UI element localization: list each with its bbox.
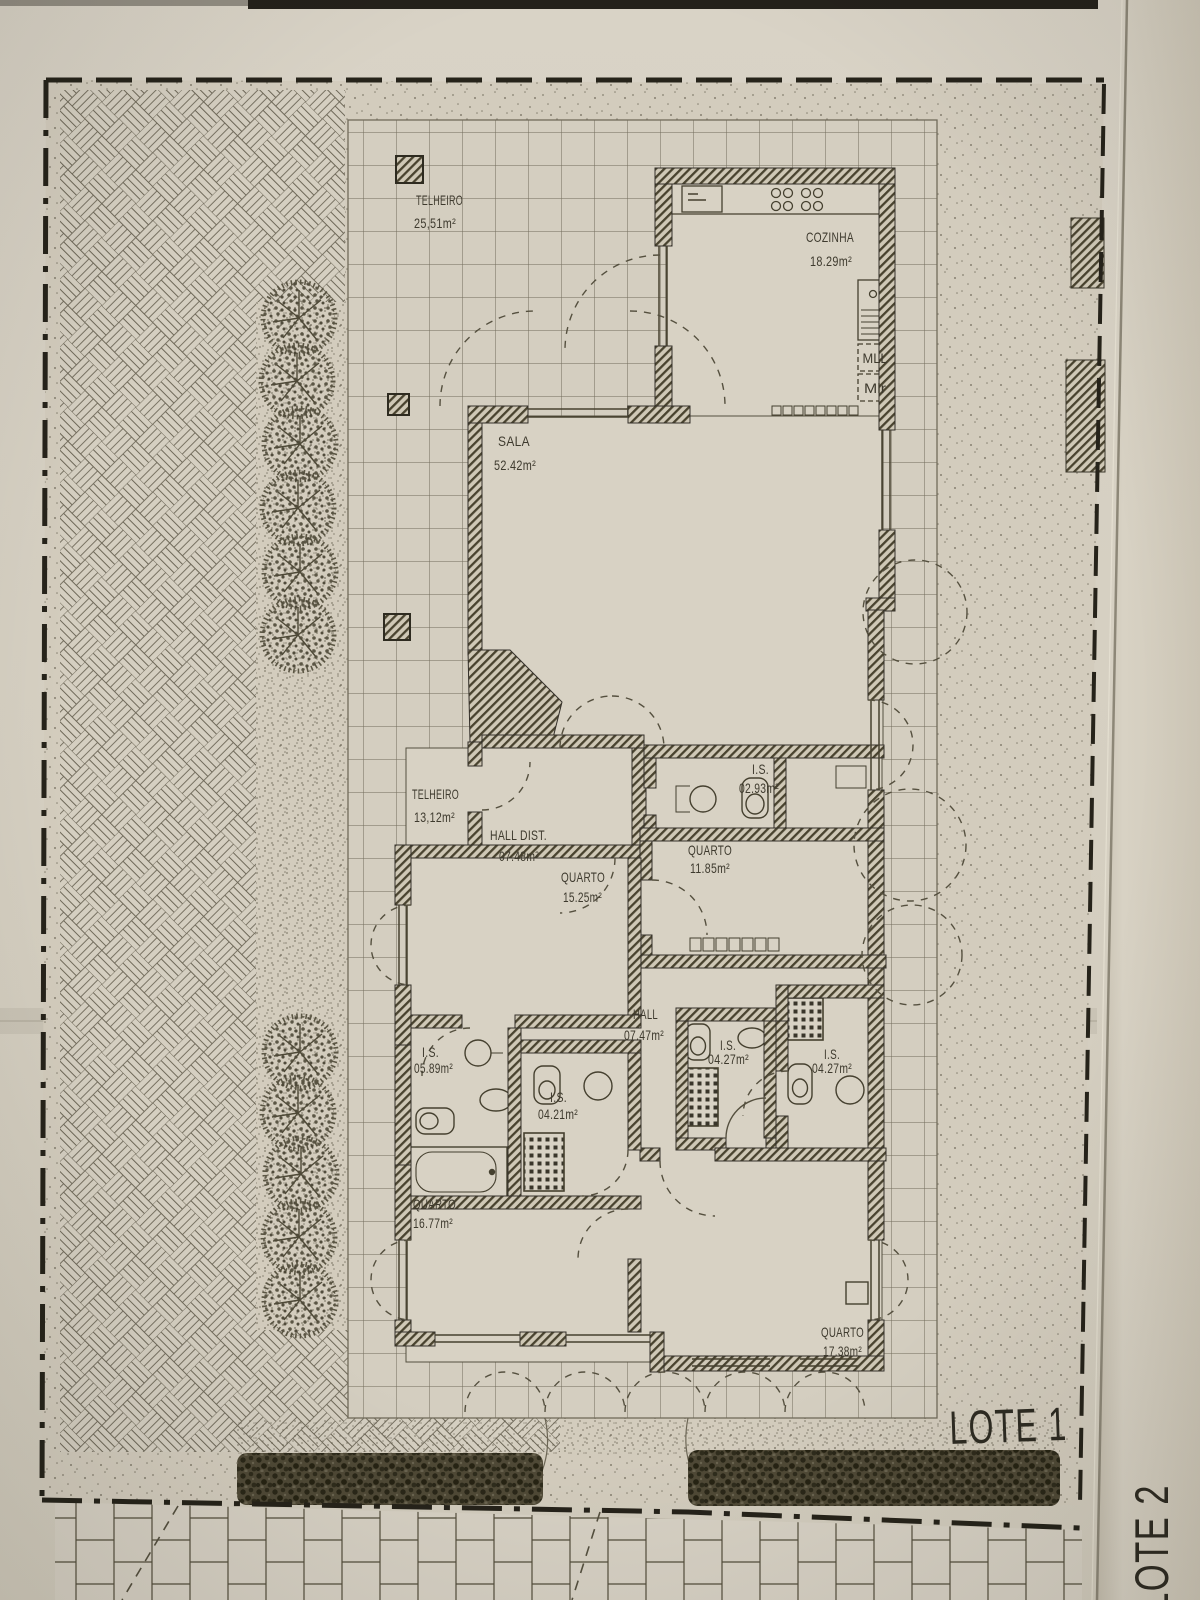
photo-vignette [0,0,1200,1600]
floor-plan-photo: TELHEIRO 25,51m² COZINHA 18.29m² SALA 52… [0,0,1200,1600]
site-plan-drawing: TELHEIRO 25,51m² COZINHA 18.29m² SALA 52… [0,0,1200,1600]
